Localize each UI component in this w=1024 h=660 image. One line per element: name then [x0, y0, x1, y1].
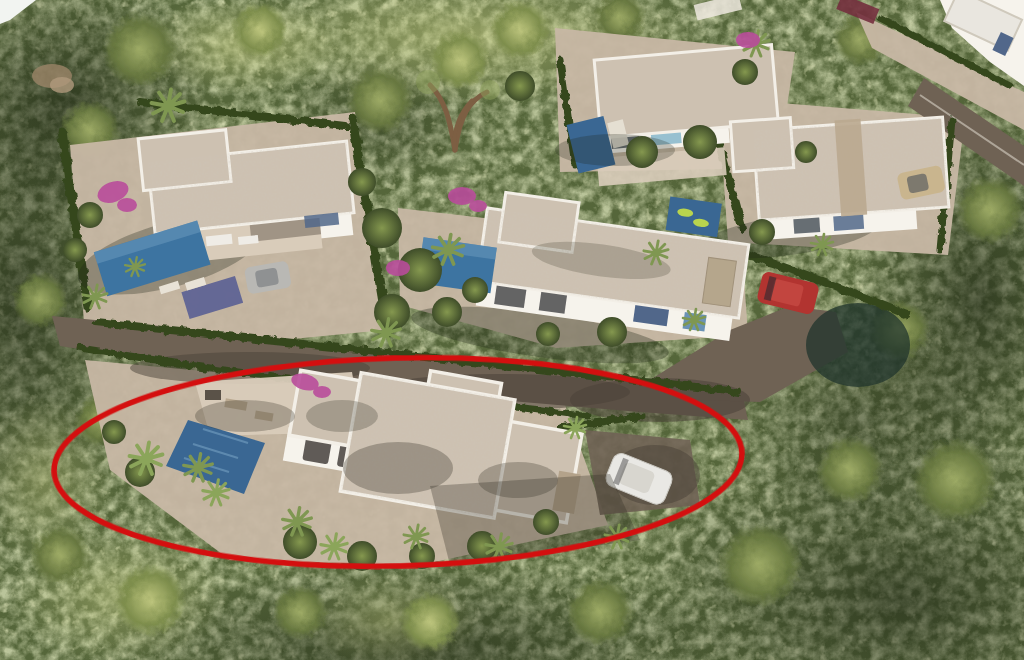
stone-chimney	[702, 257, 736, 306]
bougainvillea	[117, 198, 137, 212]
shrub	[432, 297, 462, 327]
shrub	[732, 59, 758, 85]
outdoor-kitchen	[205, 390, 221, 400]
shrub	[362, 208, 402, 248]
tree-crown	[102, 12, 178, 88]
shrub	[102, 420, 126, 444]
bougainvillea	[386, 260, 410, 276]
tree-crown	[480, 80, 500, 100]
float-pool	[666, 196, 722, 237]
shrub	[462, 277, 488, 303]
tree-crown	[232, 2, 288, 58]
shrub	[348, 168, 376, 196]
aerial-render-stage	[0, 0, 1024, 660]
bougainvillea	[469, 200, 487, 212]
shrub	[77, 202, 103, 228]
shrub	[597, 317, 627, 347]
tree-crown	[913, 438, 997, 522]
bougainvillea	[313, 386, 331, 398]
tree-crown	[400, 592, 460, 652]
tree-crown	[566, 578, 634, 646]
tree-crown	[816, 436, 884, 504]
tree-crown	[416, 70, 440, 94]
shrub	[63, 238, 87, 262]
shrub	[683, 125, 717, 159]
shrub	[505, 71, 535, 101]
tree-crown	[956, 176, 1024, 244]
rock-outcrop	[50, 77, 74, 93]
shrub	[795, 141, 817, 163]
tree-crown	[718, 523, 802, 607]
tree-crown	[114, 564, 186, 636]
aerial-render	[0, 0, 1024, 660]
shrub	[536, 322, 560, 346]
shrub	[749, 219, 775, 245]
bougainvillea	[736, 32, 760, 48]
shrub	[533, 509, 559, 535]
tree-crown	[30, 525, 90, 585]
tree-crown	[272, 584, 328, 640]
tree-crown	[490, 0, 550, 60]
deep-shade-pond	[806, 303, 910, 387]
shrub	[626, 136, 658, 168]
